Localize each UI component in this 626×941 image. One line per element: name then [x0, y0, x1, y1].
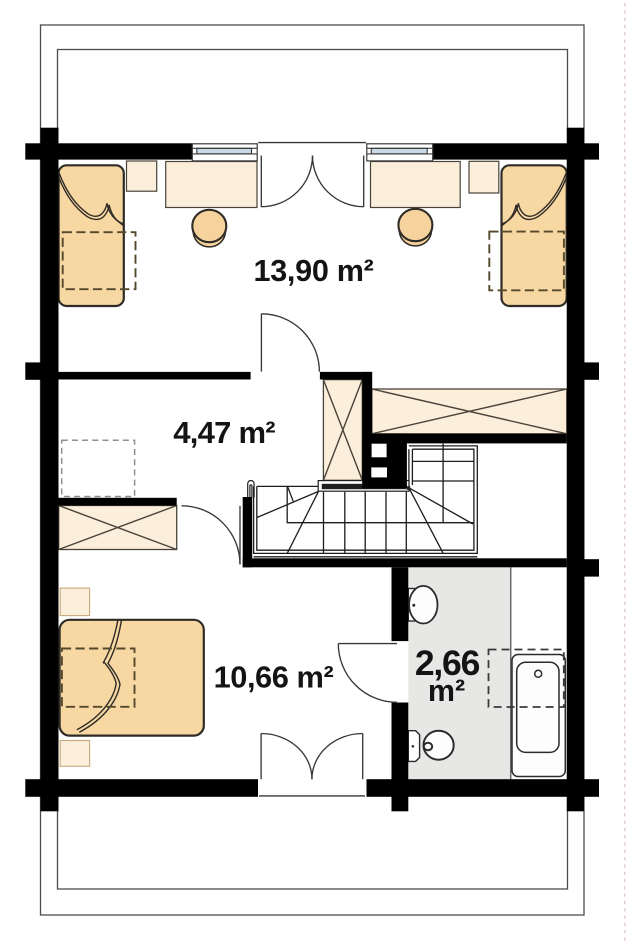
svg-text:4,47 m²: 4,47 m²	[173, 415, 275, 450]
svg-text:m²: m²	[428, 674, 465, 708]
svg-text:13,90 m²: 13,90 m²	[254, 254, 374, 288]
svg-text:10,66 m²: 10,66 m²	[214, 659, 334, 694]
